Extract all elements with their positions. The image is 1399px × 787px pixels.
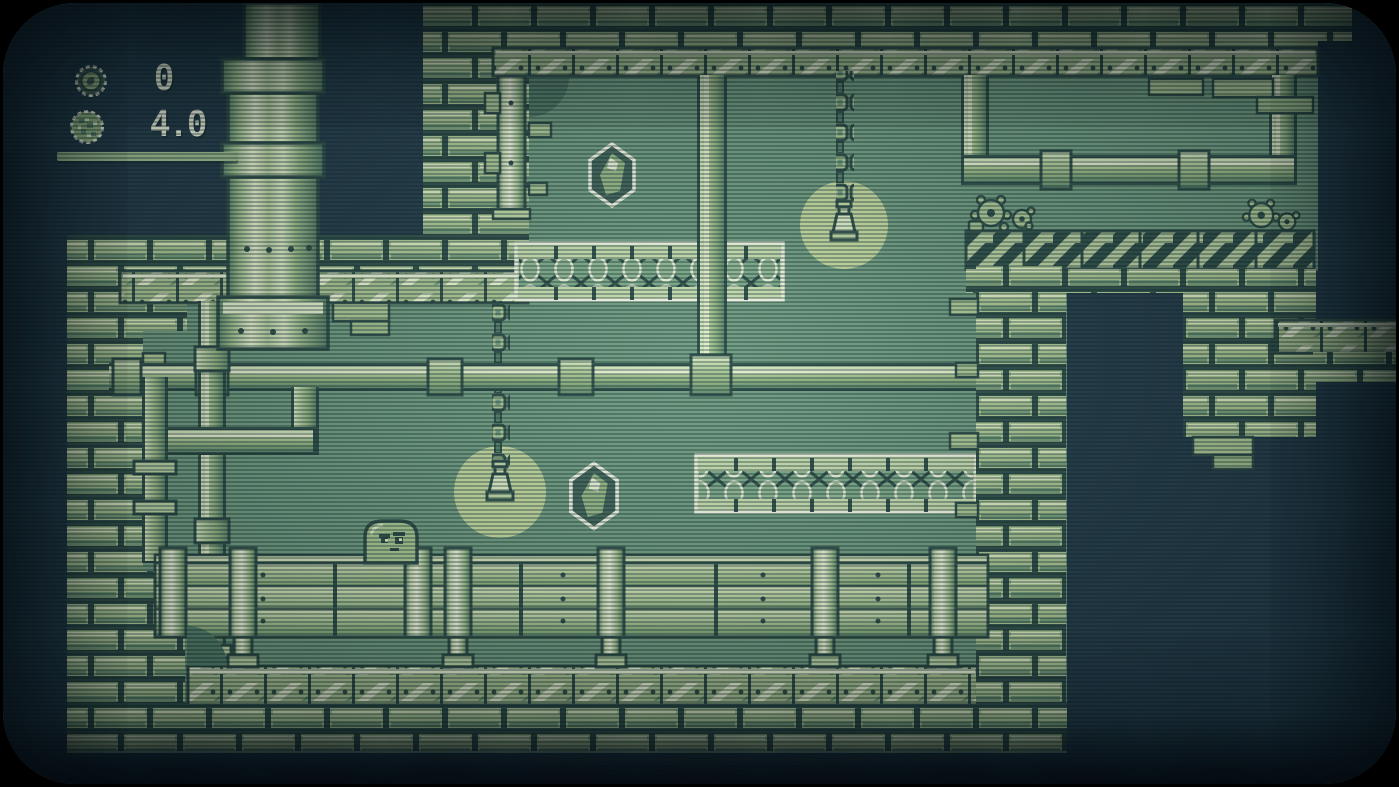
player-character[interactable] [365,521,417,563]
brick-ceiling [423,3,1352,51]
truss-platform-lower [696,455,976,512]
hud-divider [57,152,238,161]
gem-lower[interactable] [571,463,617,528]
crt-monitor: 0 4.0 [0,0,1399,787]
coin-count: 0 [154,61,172,101]
ball-icon [69,109,105,145]
gem-upper[interactable] [590,144,634,206]
chain-upper [836,71,854,205]
truss-platform-upper [516,243,783,300]
coin-icon [74,64,108,98]
hud: 0 4.0 [3,3,403,203]
bottom-shadow [3,719,1396,784]
game-screen[interactable]: 0 4.0 [3,3,1396,784]
power-value: 4.0 [150,107,205,147]
girder-top-beam [493,48,1318,76]
